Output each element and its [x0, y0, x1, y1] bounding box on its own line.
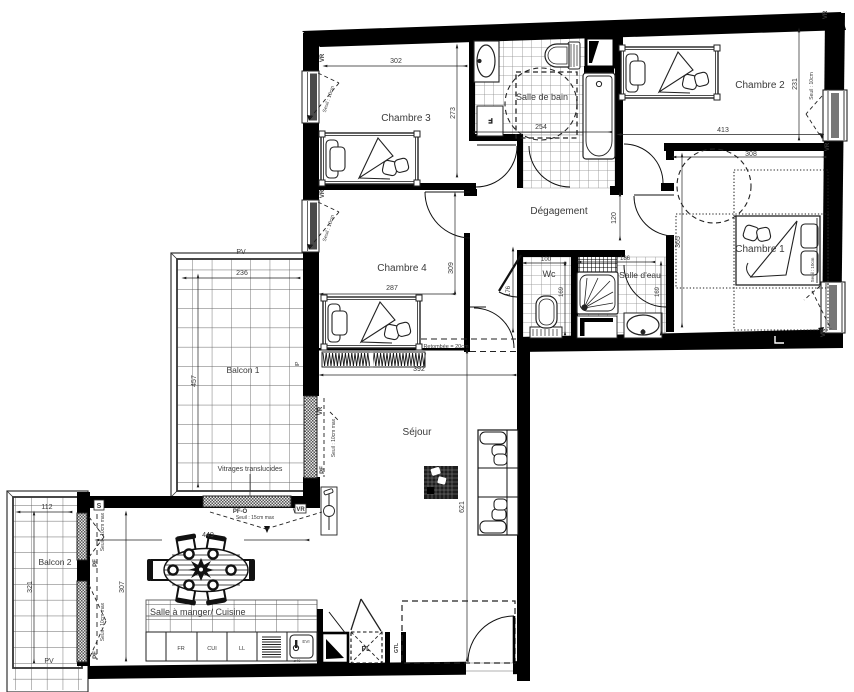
svg-text:120: 120: [611, 212, 618, 224]
svg-text:PF: PF: [320, 466, 326, 474]
svg-text:Chambre 2: Chambre 2: [735, 80, 785, 91]
svg-text:VR: VR: [320, 53, 326, 62]
svg-text:VR: VR: [296, 507, 305, 513]
svg-text:VR: VR: [825, 142, 831, 151]
svg-text:VR: VR: [821, 328, 827, 337]
svg-text:457: 457: [191, 375, 198, 387]
svg-text:LL: LL: [488, 118, 493, 124]
svg-text:449: 449: [202, 532, 214, 539]
svg-text:CUI: CUI: [207, 646, 217, 652]
svg-text:Wc: Wc: [543, 269, 556, 279]
svg-text:VR: VR: [318, 406, 324, 415]
svg-text:308: 308: [745, 151, 757, 158]
svg-text:Seuil : 10cm max: Seuil : 10cm max: [100, 602, 106, 641]
svg-text:Chambre 3: Chambre 3: [381, 113, 431, 124]
svg-text:309: 309: [448, 262, 455, 274]
svg-text:Seuil : 10cm: Seuil : 10cm: [809, 72, 815, 100]
svg-text:186: 186: [620, 256, 631, 262]
svg-text:321: 321: [27, 581, 34, 593]
svg-text:287: 287: [386, 285, 398, 292]
svg-text:Seuil : 15cm max: Seuil : 15cm max: [236, 515, 275, 521]
svg-text:IP: IP: [295, 361, 301, 366]
svg-text:112: 112: [41, 504, 52, 511]
svg-text:254: 254: [535, 124, 547, 131]
svg-text:169: 169: [655, 286, 661, 297]
svg-text:Chambre 1: Chambre 1: [735, 244, 785, 255]
svg-text:169: 169: [559, 286, 565, 297]
svg-text:LL: LL: [239, 646, 245, 652]
svg-text:Balcon 2: Balcon 2: [38, 557, 71, 567]
svg-text:PV: PV: [236, 249, 246, 256]
svg-text:PF: PF: [93, 559, 99, 567]
svg-text:EVI: EVI: [302, 639, 309, 644]
svg-text:236: 236: [236, 270, 248, 277]
svg-text:Salle de bain: Salle de bain: [516, 92, 568, 102]
svg-text:621: 621: [459, 501, 466, 513]
svg-text:413: 413: [717, 127, 729, 134]
svg-text:VR: VR: [823, 10, 829, 19]
svg-text:100: 100: [541, 257, 552, 263]
svg-text:Salle d'eau: Salle d'eau: [619, 270, 661, 280]
svg-text:Séjour: Séjour: [403, 427, 433, 438]
svg-text:ø40: ø40: [294, 658, 302, 663]
svg-text:VR: VR: [320, 189, 326, 198]
svg-text:392: 392: [413, 366, 425, 373]
svg-text:FR: FR: [177, 646, 184, 652]
svg-text:Dégagement: Dégagement: [530, 206, 587, 217]
svg-text:Retombée = 20cm: Retombée = 20cm: [423, 344, 469, 350]
svg-text:Seuil : 10cm max: Seuil : 10cm max: [331, 418, 337, 457]
svg-text:PL: PL: [362, 646, 372, 653]
svg-text:176: 176: [506, 285, 512, 296]
svg-text:S: S: [97, 503, 102, 510]
svg-text:365: 365: [675, 236, 682, 248]
svg-text:Balcon 1: Balcon 1: [226, 365, 259, 375]
svg-text:231: 231: [792, 78, 799, 90]
svg-text:Seuil : 10cm: Seuil : 10cm: [810, 257, 815, 282]
svg-text:Vitrages translucides: Vitrages translucides: [218, 466, 283, 473]
svg-text:PF: PF: [93, 651, 99, 659]
svg-text:GTL: GTL: [394, 643, 400, 653]
svg-text:307: 307: [119, 581, 126, 593]
svg-text:273: 273: [450, 107, 457, 119]
svg-text:Salle à manger/ Cuisine: Salle à manger/ Cuisine: [150, 607, 246, 617]
svg-text:302: 302: [390, 58, 402, 65]
svg-text:PV: PV: [44, 658, 54, 665]
svg-text:Chambre 4: Chambre 4: [377, 263, 427, 274]
svg-text:Seuil : 10cm max: Seuil : 10cm max: [100, 512, 106, 551]
